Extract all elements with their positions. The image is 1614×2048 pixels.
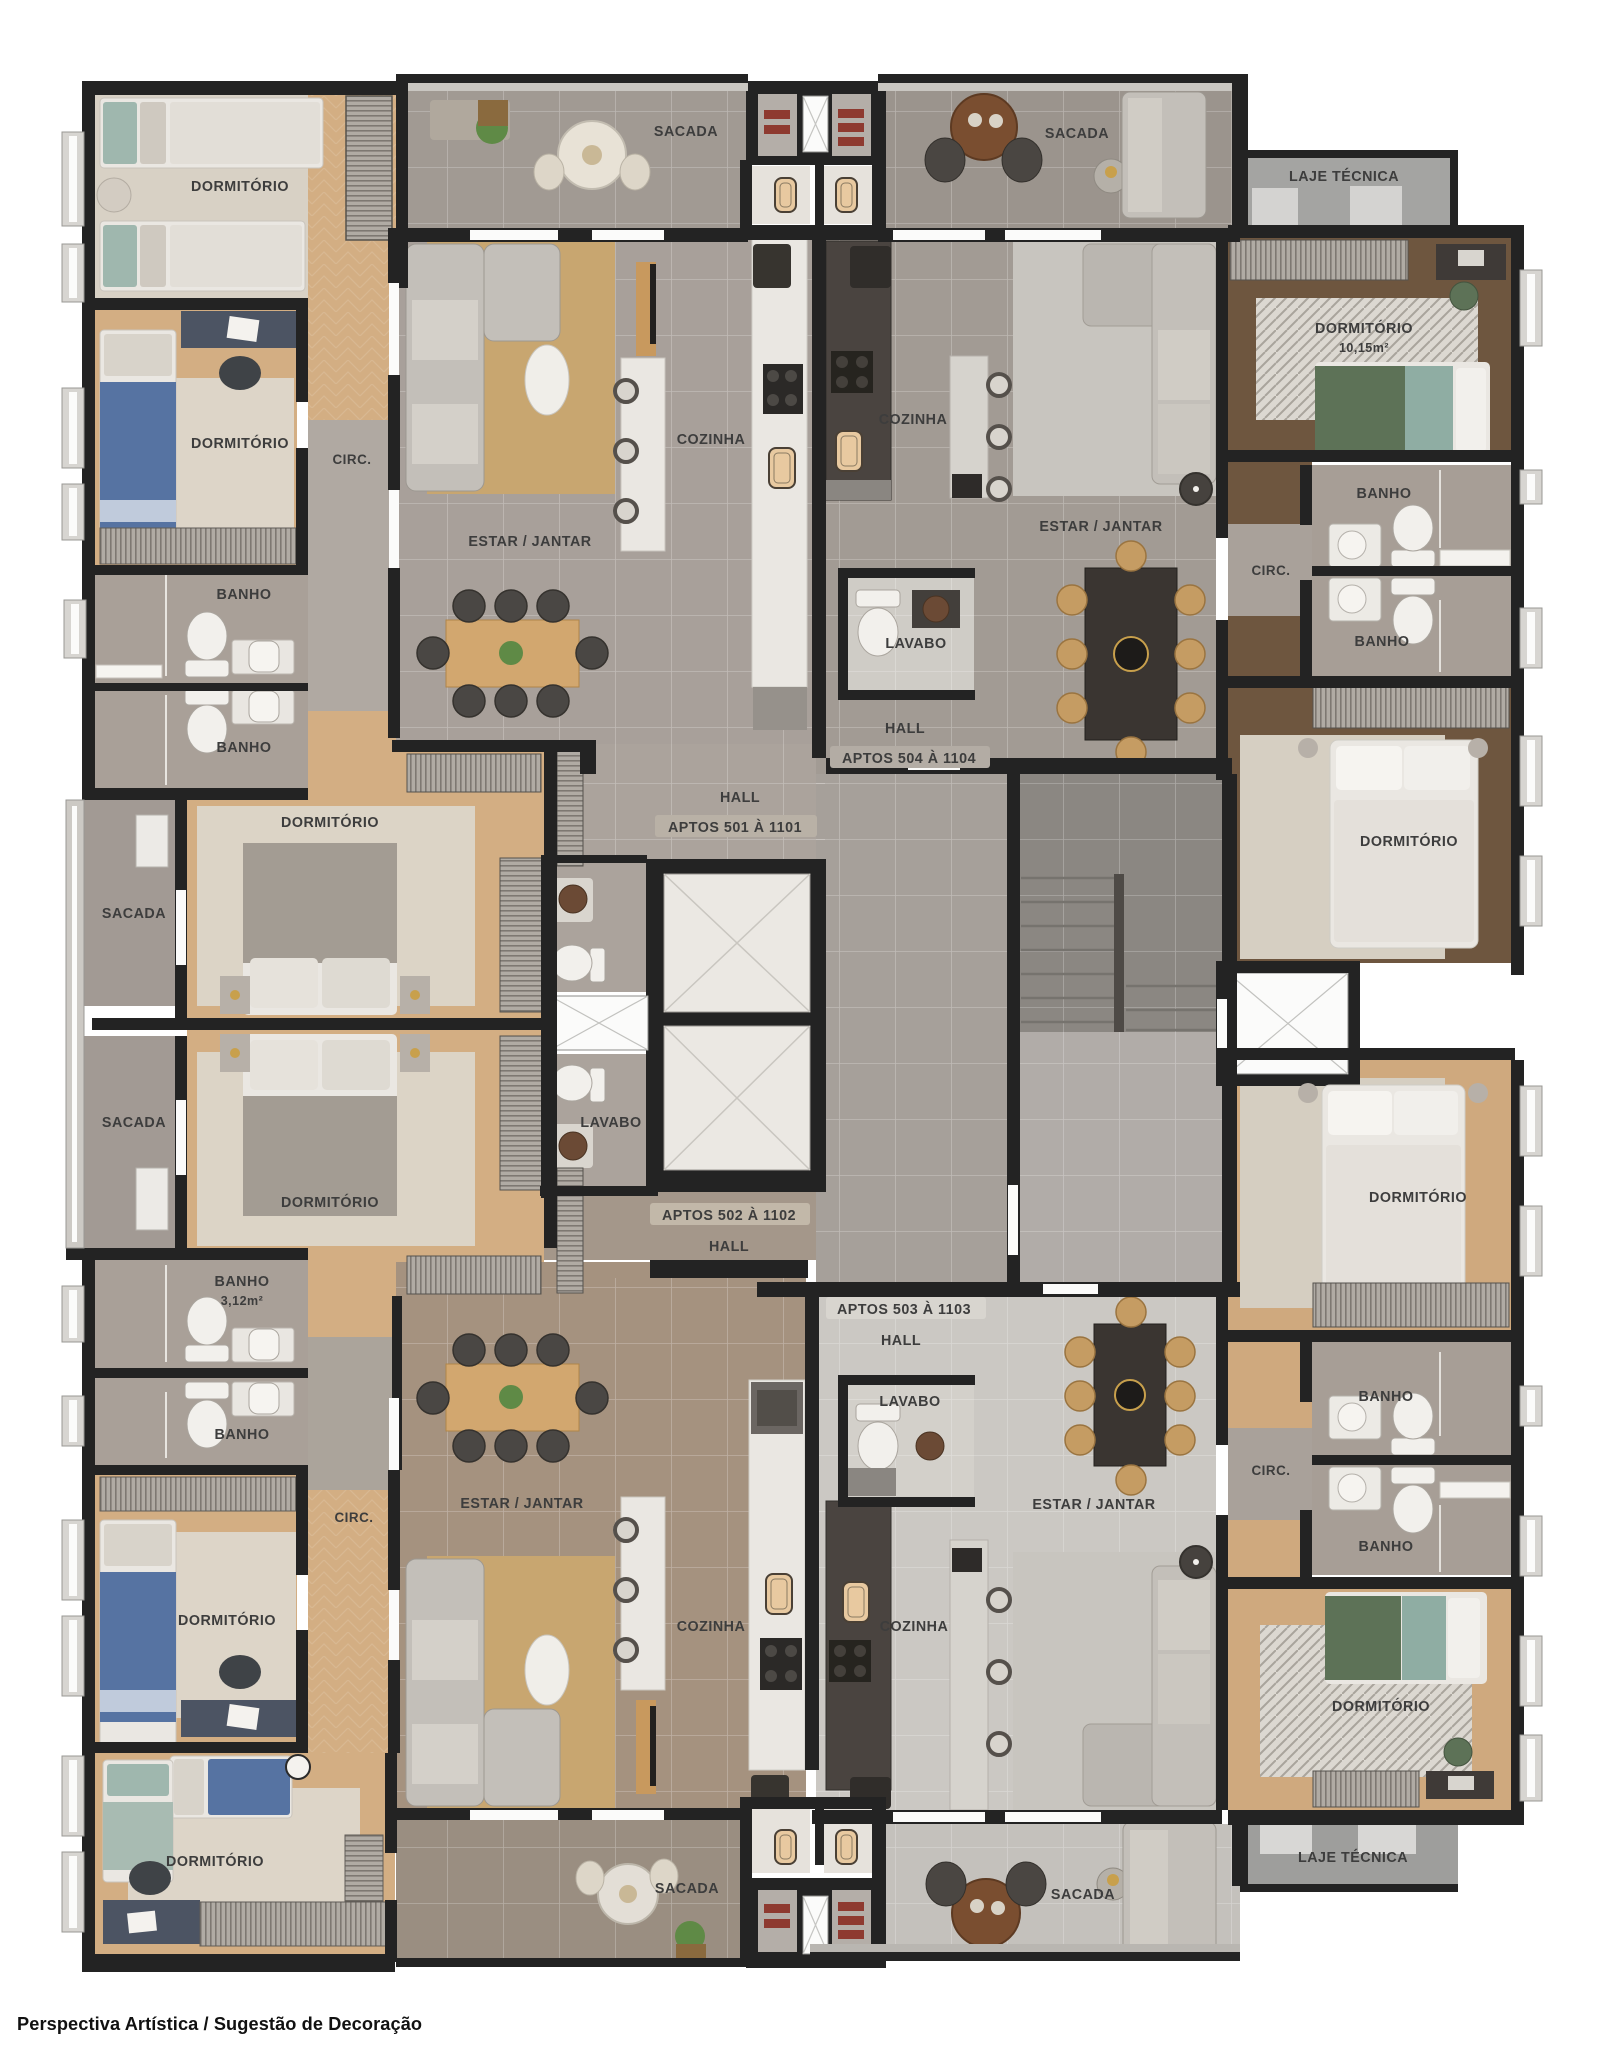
svg-text:DORMITÓRIO: DORMITÓRIO [191, 434, 289, 452]
svg-text:DORMITÓRIO: DORMITÓRIO [281, 813, 379, 831]
svg-text:HALL: HALL [709, 1239, 749, 1255]
svg-text:DORMITÓRIO: DORMITÓRIO [178, 1611, 276, 1629]
svg-text:SACADA: SACADA [654, 124, 718, 140]
svg-text:10,15m²: 10,15m² [1339, 341, 1389, 355]
svg-text:3,12m²: 3,12m² [221, 1294, 264, 1308]
svg-text:DORMITÓRIO: DORMITÓRIO [281, 1193, 379, 1211]
svg-text:SACADA: SACADA [1051, 1887, 1115, 1903]
svg-text:LAVABO: LAVABO [885, 636, 946, 652]
svg-text:COZINHA: COZINHA [880, 1619, 949, 1635]
svg-text:SACADA: SACADA [655, 1881, 719, 1897]
svg-text:BANHO: BANHO [1357, 486, 1412, 502]
svg-text:COZINHA: COZINHA [879, 412, 948, 428]
svg-text:HALL: HALL [885, 721, 925, 737]
svg-text:CIRC.: CIRC. [335, 1510, 374, 1525]
svg-text:BANHO: BANHO [217, 587, 272, 603]
svg-text:APTOS 504 À 1104: APTOS 504 À 1104 [842, 750, 976, 767]
svg-text:APTOS 501 À 1101: APTOS 501 À 1101 [668, 819, 802, 836]
svg-text:LAJE TÉCNICA: LAJE TÉCNICA [1298, 1849, 1408, 1866]
svg-text:SACADA: SACADA [102, 906, 166, 922]
svg-text:LAVABO: LAVABO [580, 1115, 641, 1131]
svg-text:CIRC.: CIRC. [333, 452, 372, 467]
svg-text:COZINHA: COZINHA [677, 1619, 746, 1635]
svg-text:BANHO: BANHO [1355, 634, 1410, 650]
svg-text:APTOS 503 À 1103: APTOS 503 À 1103 [837, 1301, 971, 1318]
svg-text:BANHO: BANHO [217, 740, 272, 756]
svg-text:Perspectiva Artística / Sugest: Perspectiva Artística / Sugestão de Deco… [17, 2014, 422, 2034]
svg-text:DORMITÓRIO: DORMITÓRIO [166, 1852, 264, 1870]
svg-text:ESTAR / JANTAR: ESTAR / JANTAR [1032, 1497, 1155, 1513]
svg-text:CIRC.: CIRC. [1252, 1463, 1291, 1478]
svg-text:ESTAR / JANTAR: ESTAR / JANTAR [1039, 519, 1162, 535]
svg-text:LAVABO: LAVABO [879, 1394, 940, 1410]
svg-text:DORMITÓRIO: DORMITÓRIO [1332, 1697, 1430, 1715]
svg-text:COZINHA: COZINHA [677, 432, 746, 448]
svg-text:SACADA: SACADA [1045, 126, 1109, 142]
svg-text:ESTAR / JANTAR: ESTAR / JANTAR [468, 534, 591, 550]
svg-text:DORMITÓRIO: DORMITÓRIO [1315, 319, 1413, 337]
svg-text:DORMITÓRIO: DORMITÓRIO [1360, 832, 1458, 850]
svg-text:SACADA: SACADA [102, 1115, 166, 1131]
svg-text:BANHO: BANHO [1359, 1539, 1414, 1555]
svg-text:APTOS 502 À 1102: APTOS 502 À 1102 [662, 1207, 796, 1224]
svg-text:BANHO: BANHO [215, 1274, 270, 1290]
svg-text:DORMITÓRIO: DORMITÓRIO [1369, 1188, 1467, 1206]
svg-text:DORMITÓRIO: DORMITÓRIO [191, 177, 289, 195]
svg-text:HALL: HALL [881, 1333, 921, 1349]
svg-text:BANHO: BANHO [215, 1427, 270, 1443]
svg-text:CIRC.: CIRC. [1252, 563, 1291, 578]
svg-text:BANHO: BANHO [1359, 1389, 1414, 1405]
svg-text:ESTAR / JANTAR: ESTAR / JANTAR [460, 1496, 583, 1512]
svg-text:LAJE TÉCNICA: LAJE TÉCNICA [1289, 168, 1399, 185]
svg-text:HALL: HALL [720, 790, 760, 806]
